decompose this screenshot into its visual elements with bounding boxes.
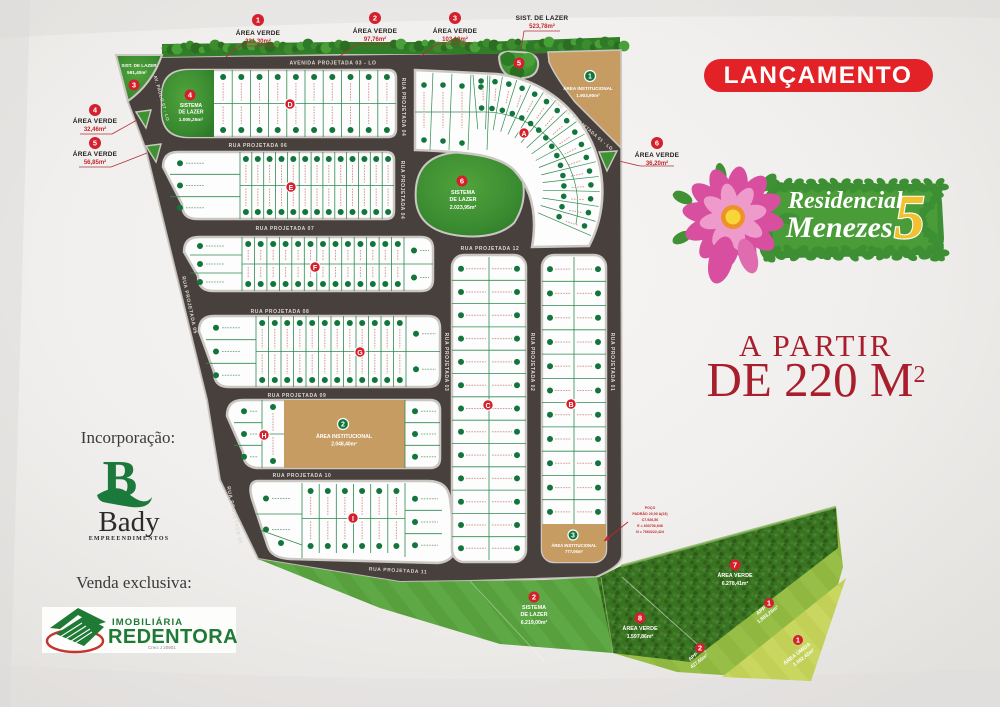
svg-text:2: 2 [698, 644, 702, 653]
svg-text:ÁREA VERDE: ÁREA VERDE [236, 28, 281, 37]
svg-text:RUA PROJETADA 03: RUA PROJETADA 03 [443, 333, 449, 392]
svg-text:A: A [521, 131, 526, 138]
svg-text:1.005,25m²: 1.005,25m² [179, 117, 204, 123]
svg-text:ÁREA INSTITUCIONAL: ÁREA INSTITUCIONAL [551, 543, 597, 548]
svg-text:2.023,95m²: 2.023,95m² [450, 205, 477, 211]
svg-text:3: 3 [571, 532, 575, 539]
svg-text:SISTEMA: SISTEMA [451, 190, 475, 196]
svg-text:2: 2 [373, 14, 377, 23]
svg-text:H: H [261, 433, 266, 440]
svg-text:B: B [568, 402, 573, 409]
svg-text:SIST. DE LAZER: SIST. DE LAZER [516, 15, 569, 22]
svg-text:DE LAZER: DE LAZER [521, 612, 548, 618]
svg-text:Bady: Bady [98, 506, 160, 538]
svg-text:G: G [357, 350, 363, 357]
svg-text:2: 2 [341, 421, 345, 428]
svg-text:56,85m²: 56,85m² [84, 159, 106, 166]
svg-text:RUA PROJETADA 12: RUA PROJETADA 12 [461, 246, 520, 252]
svg-text:RUA PROJETADA 08: RUA PROJETADA 08 [251, 309, 310, 315]
svg-text:Menezes: Menezes [785, 211, 893, 244]
svg-text:RUA PROJETADA 04: RUA PROJETADA 04 [399, 161, 405, 220]
svg-text:ÁREA VERDE: ÁREA VERDE [717, 572, 753, 579]
svg-text:5: 5 [517, 59, 521, 68]
svg-text:DE 220 M2: DE 220 M2 [707, 352, 926, 407]
svg-text:C7.926,56: C7.926,56 [642, 518, 659, 522]
svg-text:8: 8 [638, 614, 642, 623]
svg-text:3: 3 [453, 14, 457, 23]
svg-text:ÁREA VERDE: ÁREA VERDE [353, 26, 398, 35]
svg-text:RUA PROJETADA 01: RUA PROJETADA 01 [609, 333, 615, 392]
svg-text:ÁREA INSTITUCIONAL: ÁREA INSTITUCIONAL [563, 85, 613, 91]
svg-text:221,30m²: 221,30m² [245, 38, 271, 45]
svg-text:DE LAZER: DE LAZER [179, 110, 204, 116]
svg-text:DE LAZER: DE LAZER [450, 197, 477, 203]
svg-text:5: 5 [894, 184, 925, 252]
svg-text:ÁREA VERDE: ÁREA VERDE [73, 149, 118, 158]
svg-text:Incorporação:: Incorporação: [81, 428, 175, 447]
svg-text:1.597,86m²: 1.597,86m² [627, 634, 654, 640]
svg-text:2: 2 [532, 593, 536, 602]
svg-text:F: F [313, 265, 318, 272]
svg-text:103,10m²: 103,10m² [442, 36, 468, 43]
svg-text:97,76m²: 97,76m² [364, 36, 386, 43]
svg-text:D: D [287, 102, 292, 109]
svg-text:PADRÃO 20,00 A(23): PADRÃO 20,00 A(23) [632, 511, 668, 516]
svg-text:SISTEMA: SISTEMA [522, 605, 546, 611]
svg-text:591,40m²: 591,40m² [127, 70, 147, 75]
svg-text:LANÇAMENTO: LANÇAMENTO [724, 62, 913, 89]
svg-text:Creci J 20801: Creci J 20801 [148, 645, 176, 650]
svg-text:ÁREA VERDE: ÁREA VERDE [635, 150, 680, 159]
svg-text:RUA PROJETADA 02: RUA PROJETADA 02 [529, 333, 535, 392]
svg-text:C: C [485, 403, 490, 410]
svg-text:6.278,41m²: 6.278,41m² [722, 581, 749, 587]
svg-text:AVENIDA PROJETADA 03 - LO: AVENIDA PROJETADA 03 - LO [290, 61, 377, 67]
svg-text:3: 3 [132, 81, 136, 90]
svg-text:Venda exclusiva:: Venda exclusiva: [76, 573, 192, 592]
svg-text:RUA PROJETADA 04: RUA PROJETADA 04 [400, 78, 406, 137]
svg-text:E: E [289, 185, 294, 192]
svg-text:EMPREENDIMENTOS: EMPREENDIMENTOS [89, 536, 170, 542]
svg-text:6: 6 [655, 139, 659, 148]
svg-text:6.219,00m²: 6.219,00m² [521, 620, 548, 626]
svg-text:I: I [352, 516, 354, 523]
svg-text:ÁREA VERDE: ÁREA VERDE [73, 116, 118, 125]
svg-text:777,06m²: 777,06m² [565, 549, 584, 554]
svg-text:ÁREA INSTITUCIONAL: ÁREA INSTITUCIONAL [316, 433, 373, 440]
svg-text:1: 1 [796, 636, 800, 645]
svg-text:RUA PROJETADA 09: RUA PROJETADA 09 [268, 393, 327, 399]
svg-text:6: 6 [460, 177, 464, 186]
svg-text:2.048,40m²: 2.048,40m² [331, 442, 357, 448]
svg-text:1: 1 [256, 16, 260, 25]
svg-text:1: 1 [588, 73, 592, 80]
svg-text:E = 603706,948: E = 603706,948 [637, 524, 662, 528]
svg-text:5: 5 [93, 139, 97, 148]
svg-text:7: 7 [733, 561, 737, 570]
svg-text:523,78m²: 523,78m² [529, 23, 555, 30]
svg-text:1.903,90m²: 1.903,90m² [576, 93, 600, 98]
svg-text:ÁREA VERDE: ÁREA VERDE [433, 26, 478, 35]
svg-text:RUA PROJETADA 07: RUA PROJETADA 07 [256, 226, 315, 232]
svg-text:SIST. DE LAZER: SIST. DE LAZER [121, 63, 157, 68]
svg-text:32,46m²: 32,46m² [84, 126, 106, 133]
svg-text:ÁREA VERDE: ÁREA VERDE [622, 625, 658, 632]
svg-text:SISTEMA: SISTEMA [180, 103, 203, 109]
svg-text:POÇO: POÇO [645, 506, 656, 510]
svg-text:RUA PROJETADA 06: RUA PROJETADA 06 [229, 143, 288, 149]
svg-text:N = 7660222,424: N = 7660222,424 [636, 530, 664, 534]
svg-text:1: 1 [767, 599, 771, 608]
svg-text:RUA PROJETADA 10: RUA PROJETADA 10 [273, 473, 332, 479]
